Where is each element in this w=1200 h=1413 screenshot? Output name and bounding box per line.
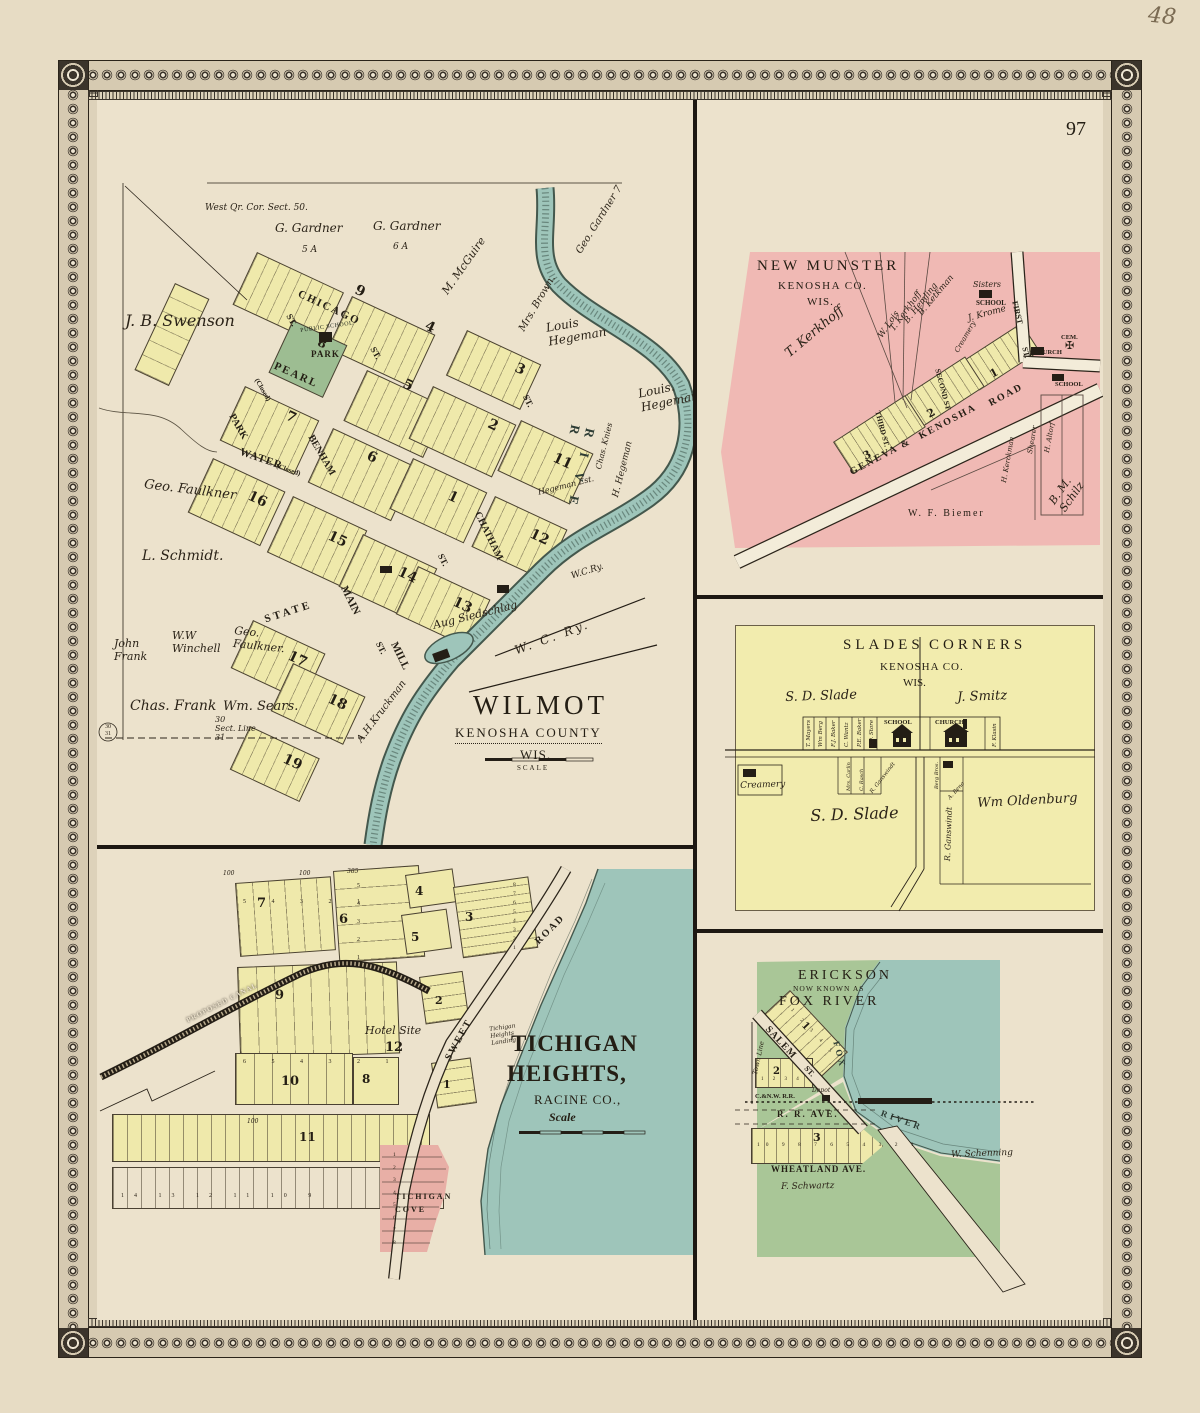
depot-building xyxy=(822,1095,830,1101)
lot-numbers: 5 4 3 2 1 xyxy=(357,877,360,967)
panel-slades-corners: SLADES CORNERS KENOSHA CO. WIS. S. D. Sl… xyxy=(695,599,1103,929)
map-state: WIS. xyxy=(807,296,834,309)
dimension-label: 100 xyxy=(247,1119,258,1126)
block-number: 2 xyxy=(435,995,443,1008)
map-title: WILMOT xyxy=(473,690,608,721)
owner-label: L. Schmidt. xyxy=(142,548,223,564)
survey-note: West Qr. Cor. Sect. 50. xyxy=(205,203,308,213)
hotel-site-label: Hotel Site xyxy=(365,1025,421,1038)
acreage-label: 6 A xyxy=(393,242,408,252)
map-subtitle: KENOSHA CO. xyxy=(778,280,867,293)
map-title: HEIGHTS, xyxy=(507,1061,627,1087)
dimension-label: 385 xyxy=(347,869,358,876)
block-number: 2 xyxy=(773,1066,780,1078)
panel-erickson: ERICKSON NOW KNOWN AS FOX RIVER SALEM ST… xyxy=(695,932,1103,1320)
scale-label: Scale xyxy=(549,1111,576,1125)
owner-label: G. Gardner xyxy=(275,222,343,236)
map-title: SLADES xyxy=(843,637,924,654)
building xyxy=(380,566,392,573)
railroad-bridge xyxy=(858,1098,932,1104)
owner-label: S. D. Slade xyxy=(785,688,857,705)
block-number: 5 xyxy=(411,931,419,945)
lot-owner-label: Mrs. Carlin xyxy=(847,762,853,791)
building xyxy=(497,585,509,593)
block-number: 3 xyxy=(465,911,473,925)
lot-numbers: 14 13 12 11 10 9 xyxy=(121,1193,321,1200)
scale-label: SCALE xyxy=(517,764,549,772)
owner-label: Chas. Frank xyxy=(130,698,216,714)
lot-owner-label: F.J. Baker xyxy=(831,720,837,747)
corner-rosette xyxy=(58,60,88,90)
panel-new-munster: NEW MUNSTER KENOSHA CO. WIS. T. Kerkhoff… xyxy=(695,100,1103,595)
lot-numbers: 5 4 3 2 1 xyxy=(243,899,372,906)
place-label: CHURCH xyxy=(1033,349,1062,356)
cove-label: TICHIGAN COVE xyxy=(395,1191,452,1217)
border-band-top xyxy=(58,60,1142,91)
panel-divider-horizontal xyxy=(97,845,695,849)
map-title: NEW MUNSTER xyxy=(757,258,899,275)
place-label: CHURCH xyxy=(935,719,964,726)
section-note: 30 Sect. Line 31 xyxy=(215,715,256,743)
school-building xyxy=(1052,374,1064,381)
street-label: WHEATLAND AVE. xyxy=(771,1164,866,1174)
panel-divider-horizontal xyxy=(695,929,1103,933)
creek xyxy=(99,408,217,452)
park-label: PARK xyxy=(311,349,340,359)
lot-owner-label: Wm Berg xyxy=(818,721,824,747)
lot-owner-label: P.O. Store xyxy=(869,720,875,747)
scale-bar xyxy=(519,1131,645,1134)
lot-numbers: 6 5 4 3 2 1 xyxy=(243,1059,401,1066)
road xyxy=(1023,362,1100,366)
map-state: WIS. xyxy=(520,748,551,763)
owner-label: Geo. Faulkner. xyxy=(232,625,286,656)
block-number: 6 xyxy=(339,913,348,928)
owner-label: R. Ganswindt xyxy=(943,807,954,862)
greek-key-left xyxy=(89,90,98,97)
erickson-map-art xyxy=(695,932,1103,1320)
lot-owner-label: F. Klasin xyxy=(992,723,998,747)
school-building xyxy=(979,290,992,298)
lot-numbers: 10 9 8 7 6 5 4 3 2 1 xyxy=(757,1142,920,1148)
lot-owner-label: P.E. Baker xyxy=(857,719,863,747)
owner-label: F. Schwartz xyxy=(781,1181,834,1192)
creamery-building xyxy=(743,769,756,777)
block-number: 1 xyxy=(443,1079,451,1092)
lot-owner-label: C. Rasch xyxy=(860,769,866,791)
dimension-label: 100 xyxy=(299,871,310,878)
railroad xyxy=(469,645,657,692)
map-title: CORNERS xyxy=(929,637,1026,654)
lot-owner-label: C. Wantz xyxy=(844,722,850,747)
shoreline xyxy=(844,962,1000,1161)
handwritten-note: 48 xyxy=(1147,3,1177,31)
border-band-left xyxy=(58,60,89,1358)
corner-rosette xyxy=(1112,60,1142,90)
map-state: WIS. xyxy=(903,677,926,690)
parcel-line xyxy=(903,252,905,400)
block-number: 4 xyxy=(415,885,423,899)
owner-label: J. Smitz xyxy=(957,689,1007,706)
place-label: SCHOOL xyxy=(976,299,1006,307)
lot-numbers: 1 2 3 4 xyxy=(761,1077,803,1083)
owner-label: W. F. Biemer xyxy=(908,508,985,520)
boundary-line xyxy=(100,1071,215,1111)
road xyxy=(899,869,924,911)
block-number: 11 xyxy=(299,1131,316,1145)
border-band-bottom xyxy=(58,1327,1142,1358)
cemetery-cross-icon: ✠ xyxy=(1065,340,1074,353)
owner-label: J. B. Swenson xyxy=(125,312,235,330)
map-subtitle: NOW KNOWN AS xyxy=(793,985,864,994)
depot-label: Depot xyxy=(812,1088,830,1095)
place-label: SCHOOL xyxy=(1055,381,1083,388)
map-subtitle: KENOSHA CO. xyxy=(880,661,964,674)
place-label: Sisters xyxy=(973,280,1001,289)
schoolhouse-icon xyxy=(891,724,913,747)
map-title: ERICKSON xyxy=(798,968,892,984)
owner-label: S. D. Slade xyxy=(810,804,899,825)
lot-owner-label: T. Mayers xyxy=(806,720,812,747)
greek-key-top xyxy=(88,91,1112,100)
lot-owner-label: Berg Bros. xyxy=(935,762,941,789)
parcel-line xyxy=(911,252,930,400)
road xyxy=(891,867,916,907)
railroad-label: C.&N.W. R.R. xyxy=(755,1093,795,1100)
geneva-kenosha-road xyxy=(737,390,1100,562)
acreage-label: 5 A xyxy=(302,245,317,255)
block-number: 12 xyxy=(385,1041,403,1056)
block-number: 10 xyxy=(281,1075,299,1090)
block-number: 8 xyxy=(362,1073,370,1087)
section-stamp: 30 31 xyxy=(103,724,113,738)
map-title: FOX RIVER xyxy=(779,994,880,1010)
owner-label: W. Schenning xyxy=(951,1148,1013,1160)
border-band-right xyxy=(1111,60,1142,1358)
map-title: TICHIGAN xyxy=(511,1031,638,1057)
new-munster-map-art xyxy=(695,100,1103,595)
panel-divider-horizontal xyxy=(695,595,1103,599)
place-label: Creamery xyxy=(740,779,785,791)
owner-label: G. Gardner xyxy=(373,220,441,234)
corner-rosette xyxy=(58,1328,88,1358)
panel-tichigan-heights: 7 6 4 5 3 9 10 8 11 2 1 5 4 3 2 1 5 4 3 … xyxy=(97,849,695,1320)
dimension-label: 100 xyxy=(223,871,234,878)
panel-divider-vertical xyxy=(693,100,697,1320)
street-label: R. R. AVE. xyxy=(777,1109,839,1119)
lot-numbers: 8 7 6 5 4 3 2 1 xyxy=(513,881,516,953)
owner-label: W.W Winchell xyxy=(172,630,221,655)
panel-wilmot: J. B. Swenson G. Gardner 5 A G. Gardner … xyxy=(97,100,695,845)
block-number: 9 xyxy=(275,989,284,1004)
owner-label: John Frank xyxy=(114,638,147,663)
map-subtitle: RACINE CO., xyxy=(534,1093,621,1108)
building xyxy=(943,761,953,768)
corner-rosette xyxy=(1112,1328,1142,1358)
greek-key-right xyxy=(1102,90,1111,97)
map-subtitle: KENOSHA COUNTY xyxy=(455,726,602,744)
owner-label: Wm. Sears. xyxy=(223,700,298,715)
place-label: SCHOOL xyxy=(884,719,912,726)
